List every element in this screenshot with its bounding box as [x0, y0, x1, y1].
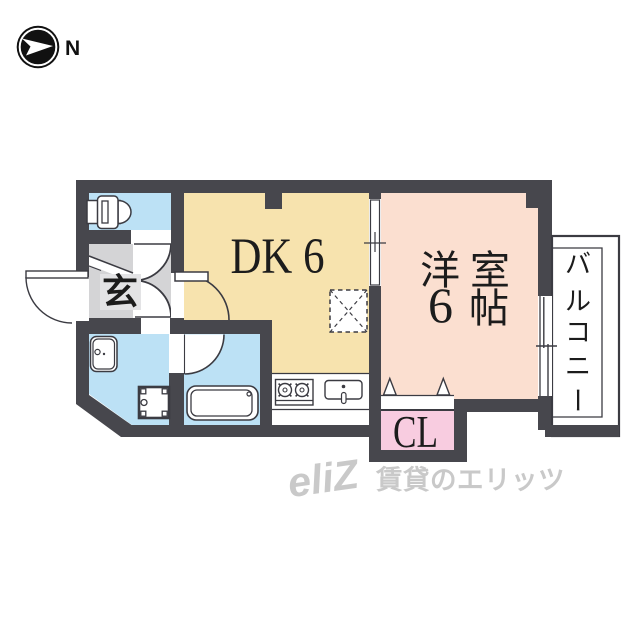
- svg-text:ル: ル: [565, 287, 591, 316]
- svg-text:賃貸のエリッツ: 賃貸のエリッツ: [375, 465, 565, 495]
- svg-text:ニ: ニ: [565, 352, 591, 381]
- svg-text:コ: コ: [565, 318, 591, 347]
- svg-text:CL: CL: [393, 406, 438, 457]
- svg-text:N: N: [65, 37, 80, 60]
- svg-text:バ: バ: [565, 250, 591, 279]
- svg-text:ー: ー: [562, 387, 591, 413]
- svg-text:玄: 玄: [102, 272, 138, 312]
- svg-text:DK 6: DK 6: [231, 229, 325, 285]
- svg-text:6帖: 6帖: [428, 277, 509, 333]
